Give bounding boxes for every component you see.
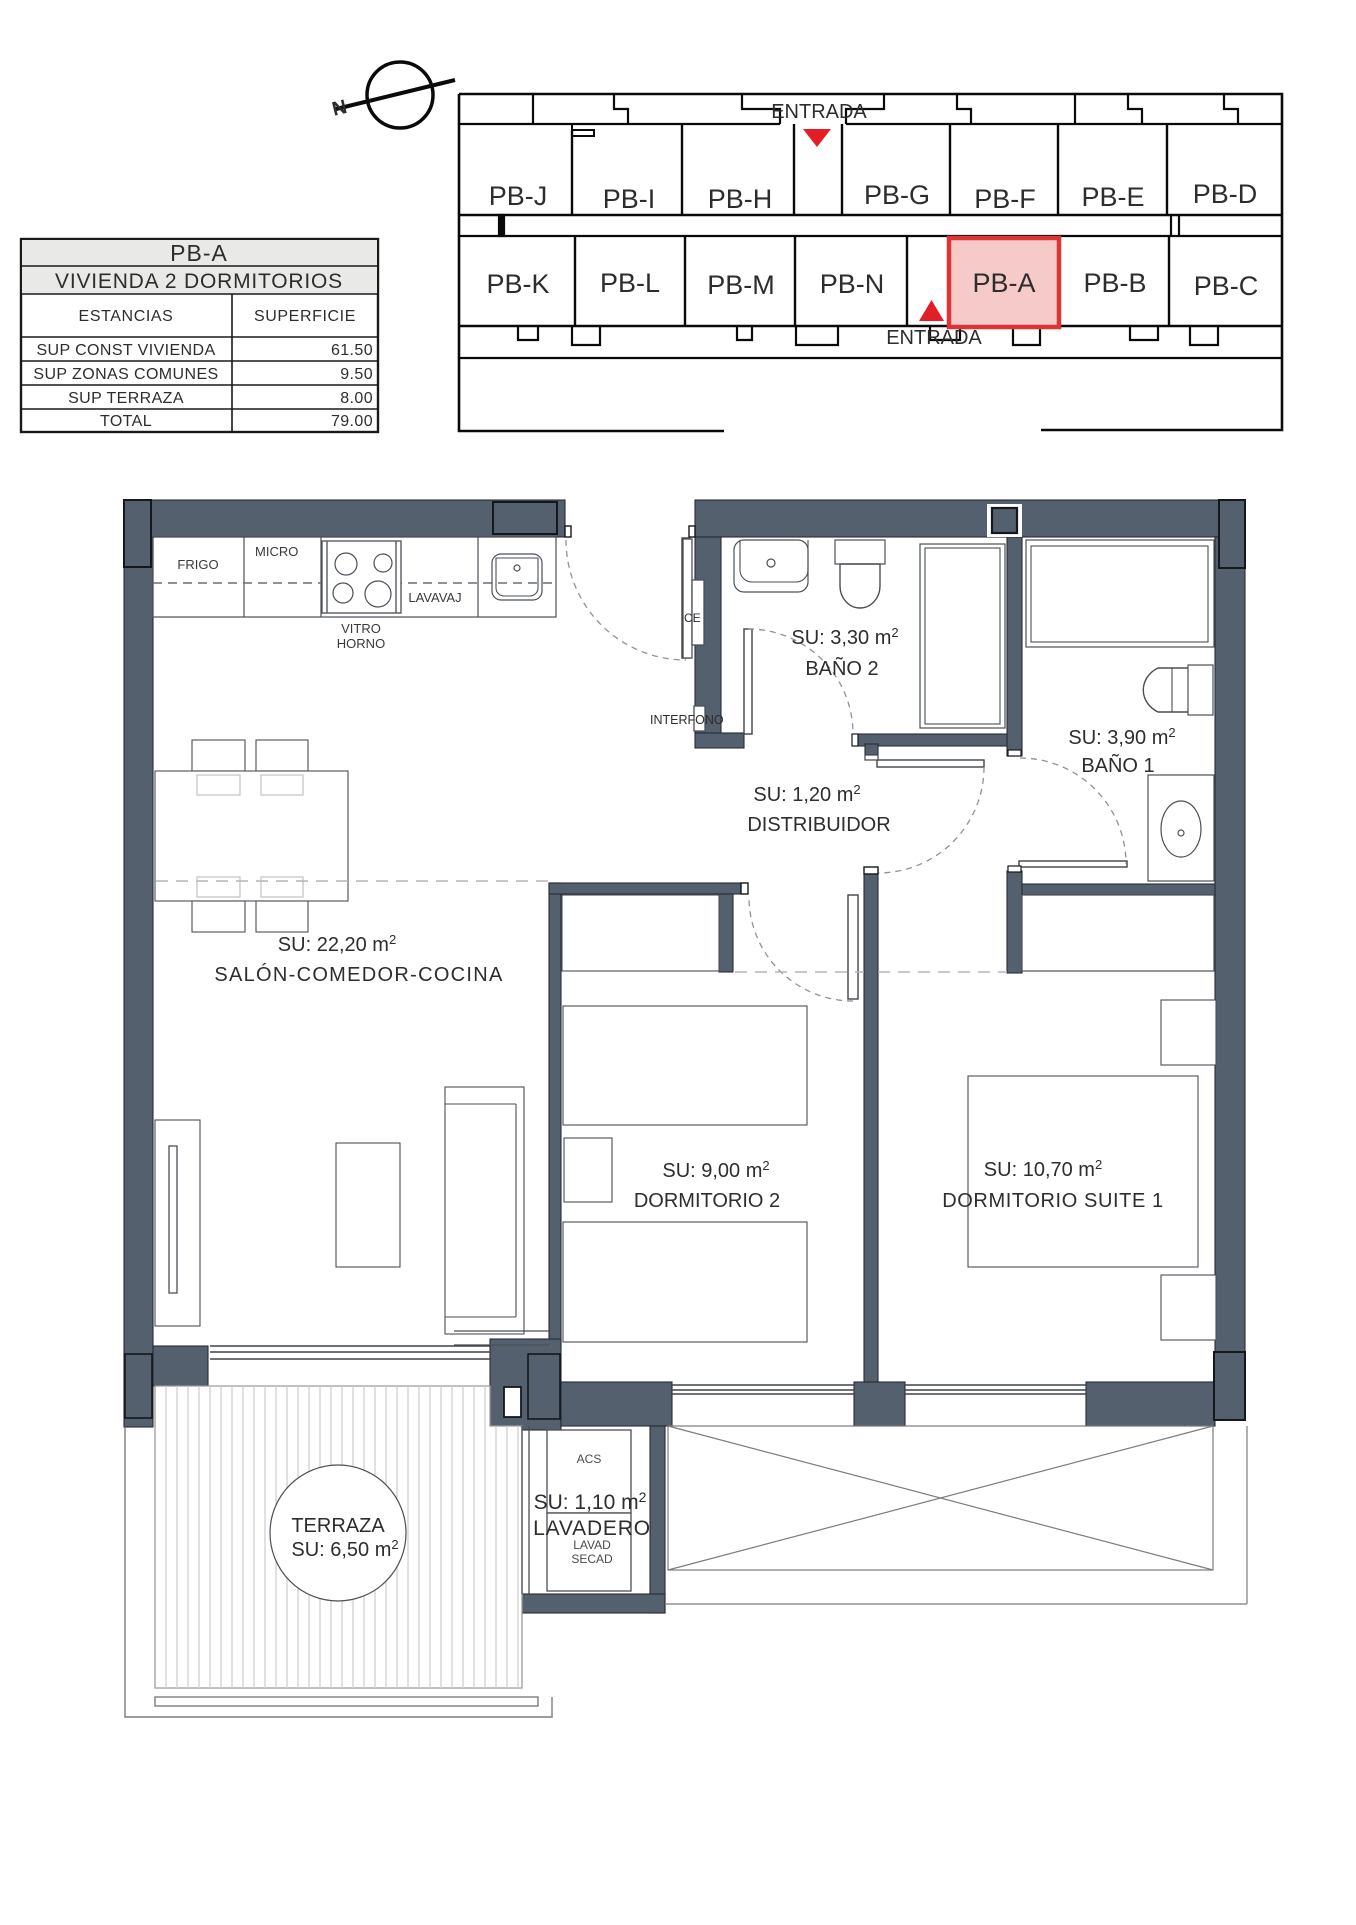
- svg-text:PB-A: PB-A: [170, 240, 228, 266]
- svg-text:SU: 1,20 m2: SU: 1,20 m2: [753, 782, 860, 806]
- svg-text:SALÓN-COMEDOR-COCINA: SALÓN-COMEDOR-COCINA: [214, 963, 503, 986]
- svg-text:BAÑO 1: BAÑO 1: [1081, 753, 1154, 777]
- svg-text:SU: 22,20 m2: SU: 22,20 m2: [278, 932, 396, 956]
- svg-text:SUP CONST VIVIENDA: SUP CONST VIVIENDA: [36, 342, 215, 359]
- svg-text:DORMITORIO SUITE 1: DORMITORIO SUITE 1: [942, 1190, 1164, 1212]
- svg-text:TOTAL: TOTAL: [100, 413, 152, 430]
- svg-text:SU: 3,90 m2: SU: 3,90 m2: [1068, 725, 1175, 749]
- svg-text:PB-K: PB-K: [486, 269, 549, 299]
- svg-text:VITRO: VITRO: [341, 621, 381, 636]
- svg-text:PB-C: PB-C: [1194, 271, 1259, 301]
- svg-text:SUPERFICIE: SUPERFICIE: [254, 308, 356, 325]
- svg-text:PB-H: PB-H: [708, 184, 773, 214]
- svg-text:PB-J: PB-J: [489, 181, 548, 211]
- svg-text:79.00: 79.00: [331, 413, 373, 430]
- svg-text:PB-D: PB-D: [1193, 179, 1258, 209]
- svg-text:PB-M: PB-M: [707, 270, 775, 300]
- svg-text:SUP ZONAS COMUNES: SUP ZONAS COMUNES: [33, 366, 218, 383]
- svg-text:VIVIENDA 2 DORMITORIOS: VIVIENDA 2 DORMITORIOS: [55, 270, 343, 293]
- svg-text:BAÑO 2: BAÑO 2: [805, 656, 878, 680]
- svg-text:HORNO: HORNO: [337, 636, 385, 651]
- svg-text:MICRO: MICRO: [255, 544, 298, 559]
- svg-text:8.00: 8.00: [340, 390, 373, 407]
- svg-text:61.50: 61.50: [331, 342, 373, 359]
- svg-text:PB-A: PB-A: [972, 268, 1035, 298]
- svg-text:DISTRIBUIDOR: DISTRIBUIDOR: [747, 814, 890, 836]
- svg-text:SECAD: SECAD: [571, 1552, 613, 1566]
- svg-text:PB-F: PB-F: [974, 184, 1036, 214]
- svg-text:TERRAZA: TERRAZA: [291, 1515, 385, 1537]
- svg-text:SU: 10,70 m2: SU: 10,70 m2: [984, 1157, 1102, 1181]
- svg-text:LAVADERO: LAVADERO: [533, 1517, 651, 1540]
- svg-text:SU: 6,50 m2: SU: 6,50 m2: [291, 1537, 398, 1561]
- svg-text:CE: CE: [684, 611, 701, 625]
- svg-text:ENTRADA: ENTRADA: [886, 327, 982, 349]
- svg-text:DORMITORIO 2: DORMITORIO 2: [634, 1190, 780, 1212]
- svg-text:PB-N: PB-N: [820, 269, 885, 299]
- svg-text:LAVAD: LAVAD: [573, 1538, 611, 1552]
- svg-text:INTERFONO: INTERFONO: [650, 713, 724, 727]
- svg-text:ESTANCIAS: ESTANCIAS: [79, 308, 174, 325]
- svg-text:PB-E: PB-E: [1081, 182, 1144, 212]
- svg-text:SUP TERRAZA: SUP TERRAZA: [68, 390, 184, 407]
- svg-text:SU: 9,00 m2: SU: 9,00 m2: [662, 1158, 769, 1182]
- svg-text:SU: 3,30 m2: SU: 3,30 m2: [791, 625, 898, 649]
- svg-text:PB-G: PB-G: [864, 180, 930, 210]
- svg-text:SU: 1,10 m2: SU: 1,10 m2: [534, 1489, 647, 1514]
- svg-text:PB-L: PB-L: [600, 268, 660, 298]
- svg-text:ENTRADA: ENTRADA: [771, 101, 867, 123]
- svg-text:LAVAVAJ: LAVAVAJ: [408, 590, 461, 605]
- svg-text:PB-I: PB-I: [603, 184, 656, 214]
- svg-text:ACS: ACS: [577, 1452, 602, 1466]
- svg-text:PB-B: PB-B: [1083, 268, 1146, 298]
- svg-text:FRIGO: FRIGO: [177, 557, 218, 572]
- svg-text:9.50: 9.50: [340, 366, 373, 383]
